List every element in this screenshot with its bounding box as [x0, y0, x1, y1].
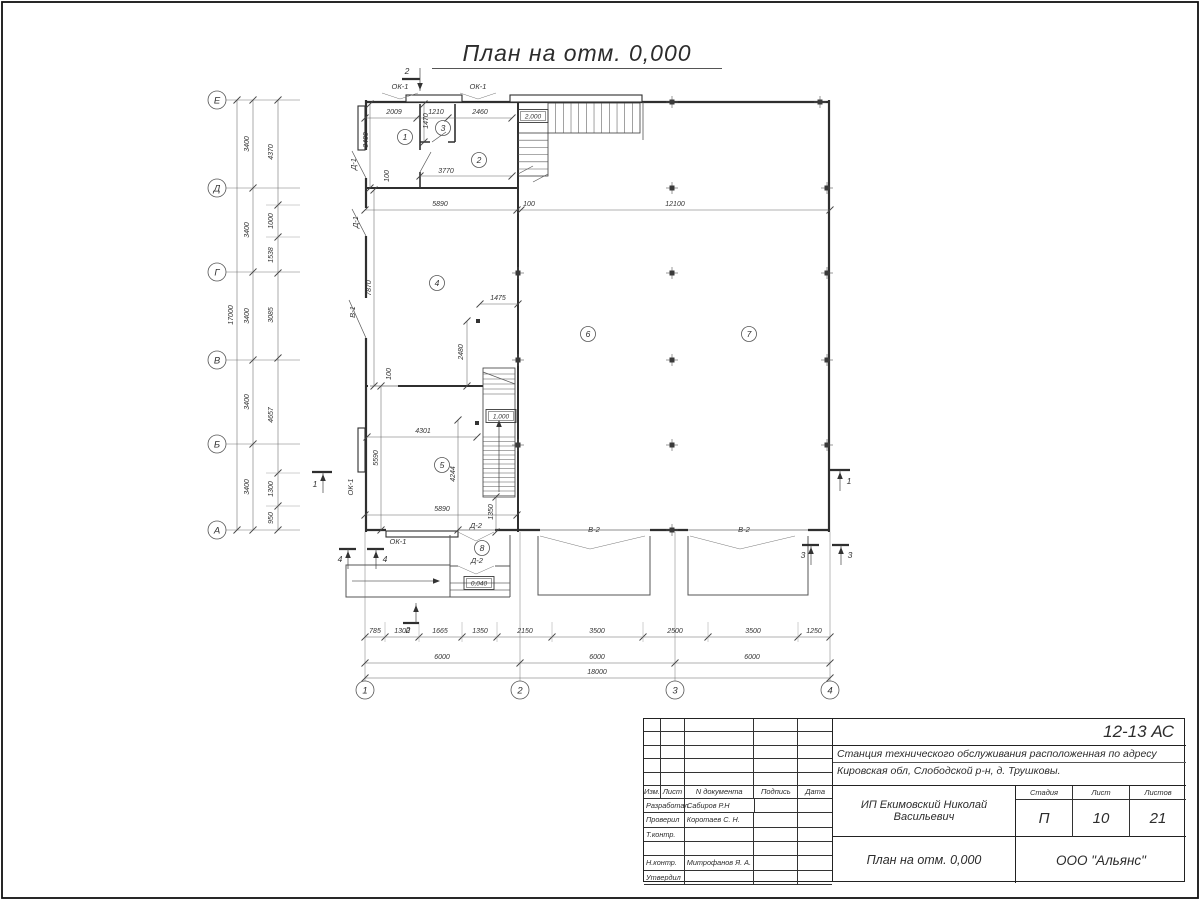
revision-row	[644, 746, 832, 759]
text-label: 1210	[428, 109, 444, 116]
role-name: Сабиров Р.Н	[685, 799, 755, 813]
project-line1: Станция технического обслуживания распол…	[833, 746, 1186, 763]
text-label: В-1	[348, 306, 357, 318]
text-label: 18000	[587, 669, 607, 676]
drawing-title: План на отм. 0,000	[432, 40, 722, 69]
role-label	[644, 842, 685, 856]
text-label: Г	[214, 268, 220, 279]
text-label: 1	[403, 132, 408, 142]
text-label: 3400	[244, 222, 251, 238]
text-label: 3400	[244, 479, 251, 495]
text-label: 2	[516, 686, 523, 697]
text-label: 3770	[438, 168, 454, 175]
text-label: 100	[384, 170, 391, 182]
revision-row	[644, 773, 832, 786]
role-row: Разработал Сабиров Р.Н	[644, 799, 832, 813]
dimension-lines	[234, 97, 834, 682]
text-label: 3	[672, 686, 678, 697]
axis-bubbles: ЕДГВБА1234	[208, 91, 839, 699]
text-label: 3085	[268, 307, 275, 323]
text-label: 3	[801, 550, 806, 560]
revision-and-signature-table: Изм. Лист N документа Подпись Дата Разра…	[644, 719, 833, 881]
text-label: 1665	[432, 628, 448, 635]
col-list: Лист	[661, 786, 685, 799]
role-row: Т.контр.	[644, 828, 832, 842]
dimension-labels: 2009121024603770589010012100147543015890…	[228, 109, 822, 676]
text-label: 4657	[268, 406, 275, 423]
text-label: 6000	[434, 654, 450, 661]
text-label: 1	[847, 476, 852, 486]
role-name	[685, 828, 755, 842]
stamp-bottom-row: План на отм. 0,000 ООО "Альянс"	[833, 837, 1186, 883]
text-label: 1300	[268, 481, 275, 497]
stage-label: Стадия	[1016, 786, 1073, 799]
text-label: В	[214, 356, 221, 367]
text-label: 5890	[432, 201, 448, 208]
text-label: 2500	[666, 628, 683, 635]
role-label: Проверил	[644, 813, 685, 827]
sheet-label: Лист	[1073, 786, 1130, 799]
text-label: 3	[441, 123, 446, 133]
text-label: 7870	[366, 280, 373, 296]
text-label: В-2	[738, 525, 751, 534]
client-name: ИП Екимовский Николай Васильевич	[833, 786, 1016, 836]
doc-number: 12-13 АС	[833, 719, 1186, 746]
text-label: Е	[214, 96, 221, 107]
text-label: 1000	[268, 213, 275, 229]
text-label: 4	[435, 278, 440, 288]
col-data: Дата	[798, 786, 832, 799]
text-label: 6	[586, 329, 591, 339]
text-label: ОК-1	[392, 82, 409, 91]
text-label: 12100	[665, 201, 685, 208]
text-label: 2009	[385, 109, 402, 116]
sheet-number: 10	[1073, 800, 1130, 837]
text-label: 3400	[244, 394, 251, 410]
level-marks: 2,0001,0000,040	[464, 110, 548, 590]
text-label: В-2	[588, 525, 601, 534]
text-label: 3400	[363, 132, 370, 148]
text-label: 1475	[490, 295, 506, 302]
role-name: Митрофанов Я. А.	[685, 856, 755, 870]
text-label: 1300	[394, 628, 410, 635]
role-label: Разработал	[644, 799, 685, 813]
text-label: 1	[362, 686, 367, 697]
text-label: 950	[268, 512, 275, 524]
project-description: Станция технического обслуживания распол…	[833, 746, 1186, 786]
room-numbers: 12345678	[398, 121, 757, 556]
text-label: 2480	[458, 344, 465, 361]
text-label: 8	[480, 543, 485, 553]
text-label: ОК-1	[470, 82, 487, 91]
wall-openings	[361, 138, 808, 534]
role-name	[685, 871, 755, 885]
col-podpis: Подпись	[754, 786, 798, 799]
organization-name: ООО "Альянс"	[1016, 837, 1186, 883]
stamp-right: 12-13 АС Станция технического обслуживан…	[833, 719, 1186, 881]
text-label: 3	[848, 550, 853, 560]
text-label: Б	[214, 440, 220, 451]
text-label: 1	[313, 479, 318, 489]
text-label: Д-1	[351, 216, 360, 229]
text-label: Д-2	[470, 556, 484, 565]
text-label: 2460	[471, 109, 488, 116]
col-ndoc: N документа	[685, 786, 755, 799]
text-label: 4	[383, 554, 388, 564]
table-header-row: Изм. Лист N документа Подпись Дата	[644, 786, 832, 799]
text-label: 5890	[434, 506, 450, 513]
sheet-title: План на отм. 0,000	[833, 837, 1016, 883]
role-row: Проверил Коротаев С. Н.	[644, 813, 832, 827]
stairs	[483, 103, 640, 497]
text-label: 2150	[516, 628, 533, 635]
stage-columns: Стадия Лист Листов П 10 21	[1016, 786, 1186, 836]
text-label: 1,000	[493, 414, 510, 421]
text-label: 17000	[228, 305, 235, 325]
text-label: 1350	[472, 628, 488, 635]
text-label: 785	[369, 628, 381, 635]
text-label: 6000	[744, 654, 760, 661]
window-bars	[358, 95, 642, 537]
role-label: Утвердил	[644, 871, 685, 885]
text-label: 4301	[415, 428, 431, 435]
sheets-label: Листов	[1130, 786, 1186, 799]
exterior-structures	[346, 93, 808, 597]
role-name: Коротаев С. Н.	[685, 813, 755, 827]
text-label: 2,000	[524, 114, 542, 121]
role-label: Н.контр.	[644, 856, 685, 870]
text-label: 1470	[423, 113, 430, 129]
drawing-sheet: { "title": "План на отм. 0,000", "plan":…	[0, 0, 1200, 900]
axis-lines	[226, 100, 830, 681]
text-label: 4	[338, 554, 343, 564]
text-label: 6000	[589, 654, 605, 661]
text-label: 4370	[268, 144, 275, 160]
sheets-total: 21	[1130, 800, 1186, 837]
text-label: 3400	[244, 136, 251, 152]
text-label: ОК-1	[346, 479, 355, 496]
text-label: А	[213, 526, 220, 537]
text-label: 4	[827, 686, 832, 697]
revision-row	[644, 759, 832, 772]
text-label: 2	[476, 155, 482, 165]
text-label: 4244	[450, 466, 457, 482]
text-label: 5	[440, 460, 445, 470]
text-label: 3500	[745, 628, 761, 635]
text-label: 1538	[268, 247, 275, 263]
text-label: Д-1	[349, 158, 358, 171]
text-label: 100	[523, 201, 535, 208]
project-line2: Кировская обл, Слободской р-н, д. Трушко…	[833, 763, 1186, 777]
text-label: 1350	[488, 504, 495, 520]
text-label: 7	[747, 329, 752, 339]
role-row: Утвердил	[644, 871, 832, 885]
col-izm: Изм.	[644, 786, 661, 799]
stamp-mid-row: ИП Екимовский Николай Васильевич Стадия …	[833, 786, 1186, 837]
stage-value: П	[1016, 800, 1073, 837]
text-label: ОК-1	[390, 537, 407, 546]
text-label: 5590	[373, 450, 380, 466]
role-label: Т.контр.	[644, 828, 685, 842]
role-row: Н.контр. Митрофанов Я. А.	[644, 856, 832, 870]
revision-row	[644, 732, 832, 745]
role-row	[644, 842, 832, 856]
text-label: Д	[213, 184, 221, 195]
text-label: 100	[386, 368, 393, 380]
text-label: 0,040	[471, 581, 488, 588]
text-label: 1250	[806, 628, 822, 635]
section-marks: 22114433	[312, 66, 853, 635]
revision-row	[644, 719, 832, 732]
text-label: Д-2	[469, 521, 483, 530]
title-block: Изм. Лист N документа Подпись Дата Разра…	[643, 718, 1185, 882]
role-name	[685, 842, 755, 856]
text-label: 2	[404, 66, 410, 76]
text-label: 3400	[244, 308, 251, 324]
text-label: 3500	[589, 628, 605, 635]
